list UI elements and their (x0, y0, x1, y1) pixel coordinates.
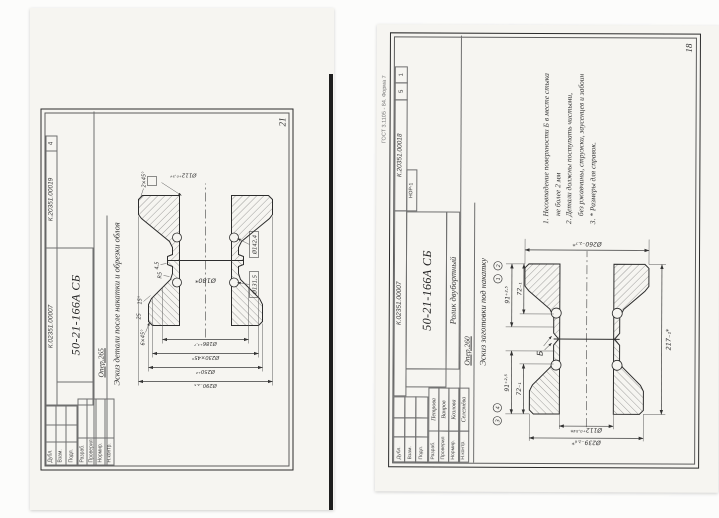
datum-flag (147, 176, 156, 185)
gost-form-note: ГОСТ 3.1105 - 84. Форма 7 (382, 75, 388, 143)
page-number: 18 (684, 44, 694, 53)
stamp-cell (45, 424, 56, 442)
dim-angle: 15° (137, 295, 143, 304)
sketch-subtitle: Эскиз заготовки под накатку (478, 258, 488, 366)
left-scanned-page: Дубл. Взам. Подл. Разраб. Проверил Норми… (30, 8, 334, 510)
note-line: без ржавчины, стружки, заусенцев и забои… (575, 34, 587, 224)
part-name-cell: Ролик двубортный (446, 212, 461, 370)
stamp-cell (55, 424, 66, 442)
note-line: 2. Детали должны поступать чистыми, (563, 34, 575, 224)
dim-chamfer2: 2×45° (141, 170, 147, 187)
dim-dia-290: Ø290₋₂.₅ (194, 382, 218, 389)
stamp-cell (55, 405, 66, 425)
stamp-label: Дубл. (45, 441, 56, 465)
groove (551, 360, 561, 370)
grid-line (106, 215, 107, 465)
right-scanned-page: ГОСТ 3.1105 - 84. Форма 7 Дубл. Взам. По… (375, 24, 719, 492)
dim-width-25: 25 (136, 313, 142, 319)
stamp-cell (415, 396, 428, 418)
roller-blank-figure: 91⁺²·⁵ 72₋₁ 91⁺²·⁵ 72₋₁ 3 4 1 2 (489, 234, 690, 450)
empty-cell (56, 381, 93, 405)
doc-number-cell: К.02351.00007 (45, 247, 57, 405)
empty-cell (405, 368, 446, 387)
ref-circle-1: 1 (496, 277, 502, 280)
sketch-subtitle: Эскиз детали после накатки и обрезки обл… (111, 222, 121, 385)
groove (612, 308, 622, 318)
dim-bore: Ø112⁺⁰·⁵⁴ (169, 171, 197, 178)
sig-name (104, 398, 114, 438)
dim-dia-230: Ø230×45° (191, 354, 220, 361)
ref-circle-3: 3 (495, 419, 501, 422)
stamp-label: Подл. (415, 436, 428, 462)
dim-chamfer: 6×45° (140, 328, 146, 345)
scan-edge-shadow (329, 74, 333, 510)
ref-circle-2: 2 (496, 264, 502, 267)
groove (229, 278, 238, 287)
sig-role: Проверил (86, 437, 96, 465)
dim-box-1: Ø131,5 (251, 274, 258, 295)
roller-after-knurling-figure: Ø186⁺¹·⁷ Ø230×45° Ø250⁺² Ø290₋₂.₅ 6×45° … (133, 155, 278, 425)
dim-72-left: 72₋₁ (516, 382, 523, 396)
dim-dia-250: Ø250⁺² (196, 368, 216, 375)
note-line: не более 2 мм (552, 34, 564, 224)
sig-role: Н.контр. (104, 437, 114, 465)
right-drawing-sheet: ГОСТ 3.1105 - 84. Форма 7 Дубл. Взам. По… (388, 32, 701, 468)
sig-role: Нормир. (95, 437, 105, 465)
code-cell: НОР-1 (406, 169, 417, 211)
operation-number: Опер.265 (96, 348, 105, 377)
groove (229, 233, 238, 242)
section-body (138, 183, 272, 337)
note-line: 1. Несовпадение поверхности Б в месте ст… (540, 34, 552, 224)
part-number-cell: 50-21-166А СБ (406, 211, 448, 369)
dim-box-2: Ø142,4 (251, 234, 258, 254)
groove (612, 360, 622, 370)
dim-72-right: 72₋₁ (516, 282, 523, 296)
sketch-number-cell: К.20351.00019 (45, 150, 57, 248)
scanned-drawings-canvas: { "left_page": { "page_number": "21", "h… (0, 0, 719, 518)
dim-radius: R5 (157, 271, 163, 278)
part-number-cell: 50-21-166А СБ (56, 247, 93, 382)
operation-number: Опер.260 (463, 336, 472, 365)
stamp-label: Взам. (55, 441, 66, 465)
datum-label: Б (536, 350, 545, 356)
dim-web: 4,5 (154, 261, 160, 269)
sig-name (95, 398, 105, 438)
stamp-label: Подл. (65, 441, 77, 465)
section-body (524, 251, 649, 428)
dim-dia-186: Ø186⁺¹·⁷ (193, 340, 217, 347)
left-drawing-sheet: Дубл. Взам. Подл. Разраб. Проверил Норми… (40, 108, 293, 470)
groove (551, 308, 561, 318)
sheet-count-cell: 4 (45, 135, 57, 151)
grid-line (473, 203, 475, 463)
stamp-cell (415, 417, 428, 437)
dim-od-left: Ø239₋₂.₆* (572, 439, 602, 446)
stamp-cell (65, 405, 77, 425)
sig-role: Разраб. (77, 437, 87, 465)
dim-length: 217₋₁* (665, 328, 673, 350)
sheet-cell: 1 (395, 66, 408, 83)
grid-line (93, 111, 94, 465)
sheet-cell: 5 (395, 82, 408, 100)
dim-od-right: Ø260₋₂.₇* (573, 240, 603, 247)
page-number: 21 (277, 117, 287, 126)
dim-91-left: 91⁺²·⁵ (504, 373, 511, 391)
dim-bore: Ø112⁺⁰·⁵⁴* (571, 426, 603, 433)
ref-circle-4: 4 (495, 406, 501, 409)
note-line: 3. * Размеры для справок. (587, 34, 599, 224)
dim-91-right: 91⁺²·⁵ (504, 285, 511, 303)
technical-notes: 1. Несовпадение поверхности Б в месте ст… (540, 34, 599, 224)
stamp-cell (65, 424, 77, 442)
stamp-cell (45, 405, 56, 425)
dim-center-dia: Ø180* (194, 276, 217, 284)
